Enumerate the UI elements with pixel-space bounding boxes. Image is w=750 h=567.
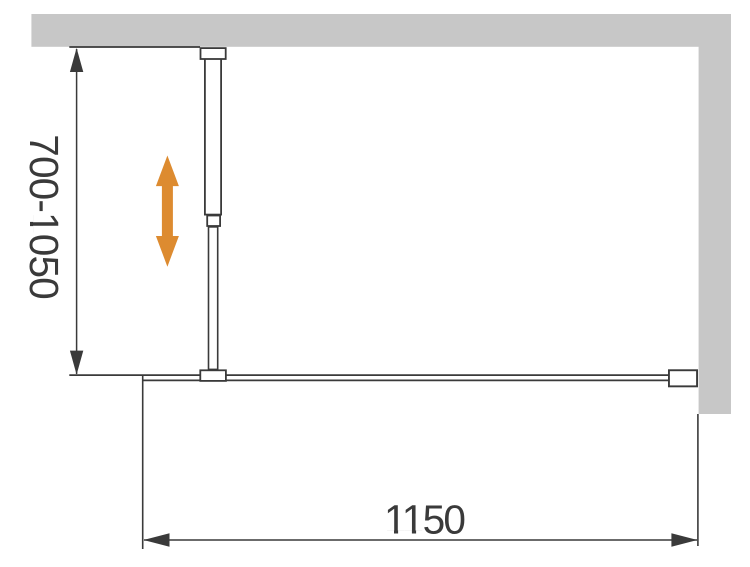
svg-text:700-1050: 700-1050 xyxy=(21,134,67,300)
svg-text:1150: 1150 xyxy=(384,497,466,543)
